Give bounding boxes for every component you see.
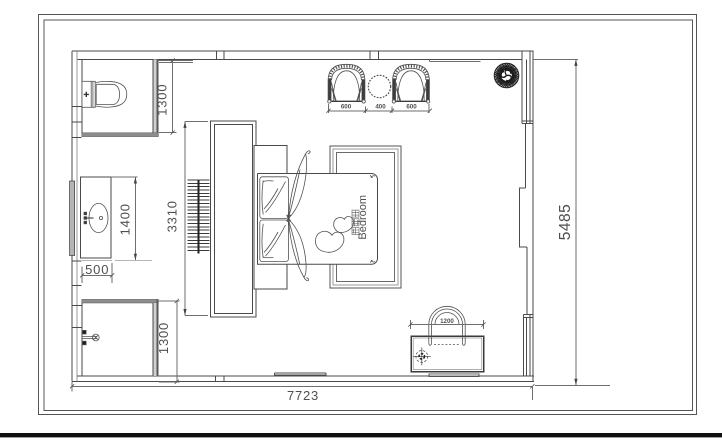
- svg-text:1300: 1300: [156, 322, 171, 354]
- svg-text:1300: 1300: [155, 84, 170, 116]
- svg-text:3310: 3310: [165, 200, 180, 232]
- svg-text:Bedroom: Bedroom: [357, 195, 369, 240]
- svg-text:7723: 7723: [287, 388, 319, 403]
- svg-text:600: 600: [341, 104, 352, 111]
- svg-text:1200: 1200: [440, 318, 454, 325]
- svg-text:400: 400: [375, 104, 386, 111]
- svg-text:1400: 1400: [118, 203, 133, 235]
- svg-text:500: 500: [85, 262, 109, 277]
- svg-text:5485: 5485: [557, 204, 574, 240]
- svg-text:600: 600: [406, 104, 417, 111]
